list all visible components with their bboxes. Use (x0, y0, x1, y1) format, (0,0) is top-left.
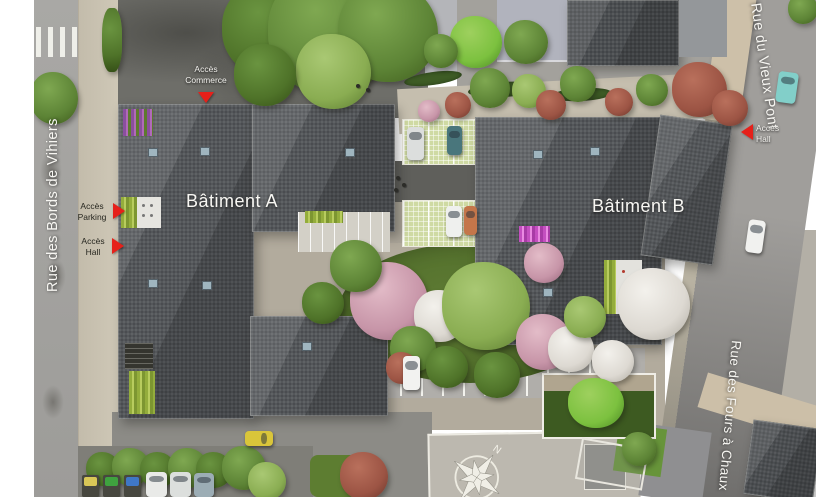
access-hall-right-marker: Accès Hall (756, 123, 790, 144)
skylight (533, 150, 543, 159)
green-roof-purple-patch (123, 109, 153, 136)
tree (450, 16, 502, 68)
skylight (543, 288, 553, 297)
pedestrian (402, 183, 406, 187)
tree (234, 44, 296, 106)
van-white (407, 127, 424, 160)
tree (424, 34, 458, 68)
pedestrian (394, 188, 398, 192)
skylight (302, 342, 312, 351)
building-a-label: Bâtiment A (186, 191, 278, 212)
compass-north-label: N (490, 443, 502, 456)
tree (302, 282, 344, 324)
access-hall-right-line2: Hall (756, 134, 790, 145)
left-margin (0, 0, 34, 497)
crosswalk (36, 27, 77, 57)
skylight (202, 281, 212, 290)
building-b-label: Bâtiment B (592, 196, 685, 217)
tree (470, 68, 510, 108)
car-white (446, 206, 462, 237)
tree-red (605, 88, 633, 116)
skylight (200, 147, 210, 156)
tree-white (592, 340, 634, 382)
car-orange (464, 206, 477, 235)
tree (330, 240, 382, 292)
tree (296, 34, 371, 109)
tree-red (340, 452, 388, 497)
pedestrian (366, 88, 370, 92)
neighbour-roof-dark (567, 0, 679, 66)
access-hall-right-line1: Accès (756, 123, 790, 134)
tree-pink (524, 243, 564, 283)
waste-bin-blue (124, 475, 141, 497)
access-commerce-line2: Commerce (178, 75, 234, 86)
car-teal (775, 71, 799, 104)
roof-vents (125, 343, 153, 369)
tree (504, 20, 548, 64)
skylight (345, 148, 355, 157)
roof-terrace (137, 197, 161, 228)
access-commerce-marker: Accès Commerce (178, 64, 234, 85)
tree (474, 352, 520, 398)
building-bottom-right-corner (743, 419, 823, 497)
bush (30, 72, 78, 124)
tree (564, 296, 606, 338)
waste-bin-green (103, 475, 120, 497)
tree-red (712, 90, 748, 126)
waste-bin-yellow (82, 475, 99, 497)
tree (622, 432, 656, 466)
car-teal-dark (447, 126, 462, 155)
tree (636, 74, 668, 106)
tree (568, 378, 624, 428)
tree-red (536, 90, 566, 120)
green-roof-magenta-patch (519, 226, 550, 242)
access-arrow-down-icon (198, 92, 214, 103)
tree (560, 66, 596, 102)
parked-car (194, 473, 214, 497)
access-commerce-line1: Accès (178, 64, 234, 75)
right-margin (816, 0, 840, 497)
tree-pink (418, 100, 440, 122)
skylight (590, 147, 600, 156)
pedestrian (396, 176, 400, 180)
neighbour-roof-gray (679, 0, 727, 57)
car-yellow (245, 431, 273, 446)
skylight (148, 279, 158, 288)
street-label-bords-de-vihiers: Rue des Bords de Vihiers (45, 118, 61, 292)
access-parking-line1: Accès (72, 201, 112, 212)
road-stain (42, 385, 64, 419)
hedge (248, 462, 286, 497)
access-hall-left-line1: Accès (74, 236, 112, 247)
green-roof-strip (129, 371, 155, 414)
parked-car (170, 472, 191, 497)
access-hall-left-line2: Hall (74, 247, 112, 258)
site-plan-canvas: N Rue des Bords de Vihiers Rue du Vieux … (0, 0, 840, 497)
pedestrian (356, 84, 360, 88)
skylight (148, 148, 158, 157)
access-hall-left-marker: Accès Hall (74, 236, 112, 257)
bush (102, 8, 122, 72)
access-arrow-right-icon (113, 203, 125, 219)
access-arrow-left-icon (741, 124, 753, 140)
car-white (403, 356, 420, 390)
tree-white (618, 268, 690, 340)
green-roof-strip (305, 211, 343, 223)
access-parking-line2: Parking (72, 212, 112, 223)
tree (426, 346, 468, 388)
tree-red (445, 92, 471, 118)
access-arrow-right-icon (112, 238, 124, 254)
access-parking-marker: Accès Parking (72, 201, 112, 222)
parked-car (146, 472, 167, 497)
